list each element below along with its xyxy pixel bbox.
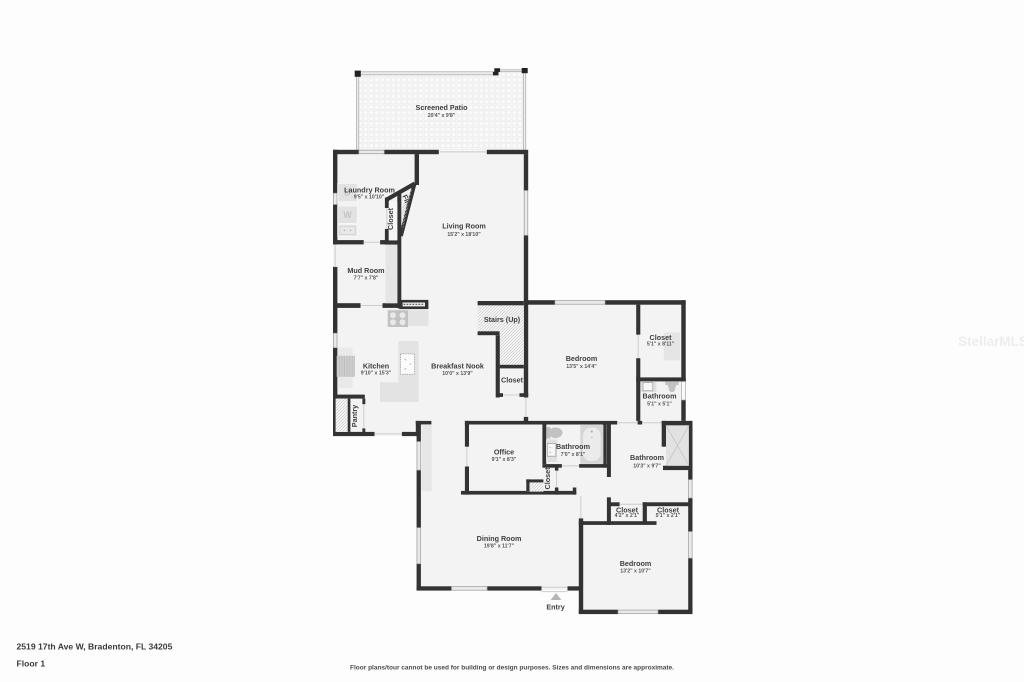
svg-text:Living Room: Living Room: [442, 221, 486, 230]
svg-text:Office: Office: [494, 448, 514, 457]
svg-text:13'5" x 14'4": 13'5" x 14'4": [566, 364, 597, 370]
svg-text:Bathroom: Bathroom: [643, 392, 677, 401]
svg-text:Bedroom: Bedroom: [566, 354, 598, 363]
svg-text:7'7" x 7'8": 7'7" x 7'8": [354, 276, 379, 282]
svg-text:5'1" x 5'1": 5'1" x 5'1": [647, 401, 672, 407]
svg-text:9'5" x 10'10": 9'5" x 10'10": [354, 195, 385, 201]
svg-text:10'0" x 13'9": 10'0" x 13'9": [442, 371, 473, 377]
svg-text:5'1" x 8'11": 5'1" x 8'11": [647, 342, 675, 348]
svg-text:Mud Room: Mud Room: [347, 266, 384, 275]
svg-text:13'2" x 10'7": 13'2" x 10'7": [620, 569, 651, 575]
svg-text:Laundry Room: Laundry Room: [344, 185, 395, 194]
svg-text:Breakfast Nook: Breakfast Nook: [431, 362, 484, 371]
svg-text:Dining Room: Dining Room: [477, 534, 522, 543]
svg-text:Stairs (Up): Stairs (Up): [484, 315, 521, 324]
svg-text:9'1" x 8'3": 9'1" x 8'3": [492, 457, 517, 463]
svg-text:Bedroom: Bedroom: [620, 559, 652, 568]
svg-text:Bathroom: Bathroom: [556, 442, 590, 451]
svg-text:20'4" x 9'8": 20'4" x 9'8": [428, 113, 456, 119]
svg-text:Closet: Closet: [543, 467, 552, 490]
svg-text:StellarMLS: StellarMLS: [958, 334, 1024, 349]
svg-text:Kitchen: Kitchen: [363, 362, 389, 371]
svg-text:Floor plans/tour cannot be use: Floor plans/tour cannot be used for buil…: [350, 665, 674, 672]
svg-text:Entry: Entry: [546, 603, 564, 612]
svg-text:Closet: Closet: [386, 207, 395, 230]
svg-text:W: W: [343, 210, 352, 220]
svg-text:Pantry: Pantry: [350, 405, 359, 427]
svg-text:Bathroom: Bathroom: [630, 453, 664, 462]
svg-text:9'10" x 15'3": 9'10" x 15'3": [361, 371, 392, 377]
svg-text:10'3" x 9'7": 10'3" x 9'7": [633, 463, 661, 469]
svg-text:Closet: Closet: [501, 376, 524, 385]
svg-text:4'2" x 2'1": 4'2" x 2'1": [615, 513, 640, 519]
svg-text:Floor 1: Floor 1: [17, 659, 46, 669]
svg-text:15'2" x 18'10": 15'2" x 18'10": [447, 232, 481, 238]
svg-text:2519 17th Ave W, Bradenton, FL: 2519 17th Ave W, Bradenton, FL 34205: [17, 642, 173, 652]
svg-text:5'1" x 2'1": 5'1" x 2'1": [656, 513, 681, 519]
svg-text:Screened Patio: Screened Patio: [416, 103, 469, 112]
svg-text:19'8" x 11'7": 19'8" x 11'7": [484, 543, 515, 549]
svg-text:7'0" x 8'1": 7'0" x 8'1": [561, 452, 586, 458]
